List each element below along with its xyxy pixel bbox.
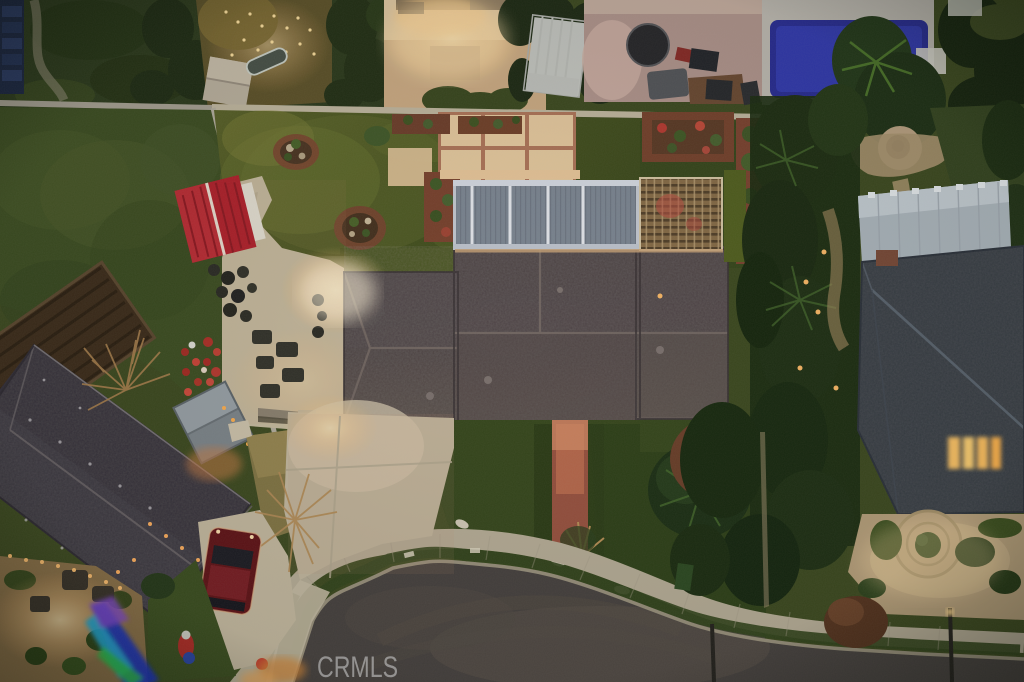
svg-text:CRMLS: CRMLS [317, 651, 398, 682]
